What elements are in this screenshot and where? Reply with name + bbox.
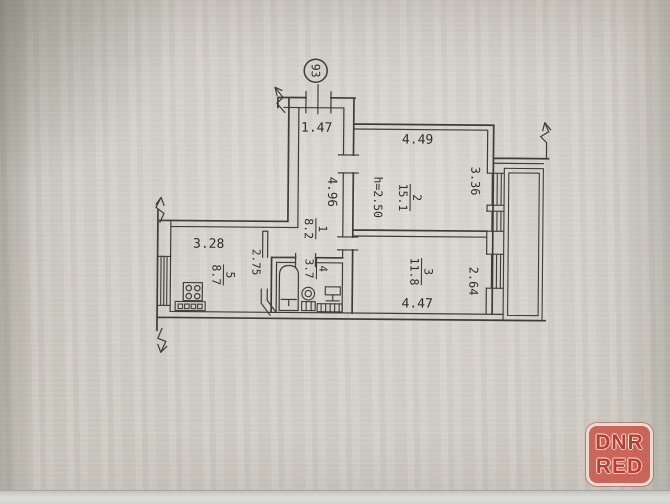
kitchen-counter-icon (175, 301, 205, 310)
room-4-label: 4 3.7 (302, 259, 329, 279)
apartment-number-badge: 93 (304, 59, 327, 82)
room-4-number: 4 (316, 265, 329, 272)
room-3-number: 3 (421, 268, 435, 275)
dim-room2-depth: 3.36 (468, 167, 482, 196)
room-5-number: 5 (223, 271, 237, 278)
toilet-icon (302, 287, 316, 310)
dimension-labels: 1.47 4.49 3.28 4.47 4.96 3.36 2.64 2.75 … (192, 120, 482, 313)
dim-kitchen-width: 3.28 (193, 237, 224, 252)
dim-room2-width: 4.49 (402, 132, 433, 147)
floor-plan-svg: 93 1.47 4.49 3.28 4.47 4.96 3.36 2.64 2.… (0, 0, 670, 504)
room-3-area: 11.8 (407, 258, 421, 286)
ceiling-height-note: h=2.50 (371, 176, 385, 218)
dim-room3-depth: 2.64 (466, 267, 480, 296)
photo-of-floor-plan: 93 1.47 4.49 3.28 4.47 4.96 3.36 2.64 2.… (0, 0, 670, 504)
watermark-line-1: DNR (595, 431, 644, 455)
sink-icon (325, 287, 340, 301)
bathtub-icon (279, 265, 298, 310)
dnr-red-watermark: DNR RED (586, 423, 653, 486)
walls-outer (157, 96, 549, 333)
room-5-area: 8.7 (209, 264, 223, 285)
stove-icon (183, 283, 202, 301)
dim-lobby-width: 2.75 (249, 249, 262, 276)
apartment-number: 93 (309, 64, 323, 78)
room-2-area: 15.1 (396, 184, 410, 212)
walls-inner (170, 106, 544, 317)
room-3-label: 3 11.8 (407, 258, 435, 286)
dim-entry-width: 1.47 (301, 121, 332, 136)
room-2-number: 2 (410, 194, 424, 201)
room-1-area: 8.2 (302, 218, 316, 239)
watermark-line-2: RED (596, 455, 643, 479)
room-1-number: 1 (316, 225, 330, 232)
room-1-label: 1 8.2 (302, 218, 330, 239)
dim-room3-width: 4.47 (401, 296, 432, 311)
room-5-label: 5 8.7 (209, 264, 237, 285)
room-2-label: 2 15.1 (396, 184, 424, 212)
dim-corridor-length: 4.96 (325, 177, 340, 207)
room-4-area: 3.7 (302, 259, 315, 279)
floor-plan-drawing: 93 1.47 4.49 3.28 4.47 4.96 3.36 2.64 2.… (155, 58, 552, 356)
cabinet-icon (317, 304, 342, 312)
